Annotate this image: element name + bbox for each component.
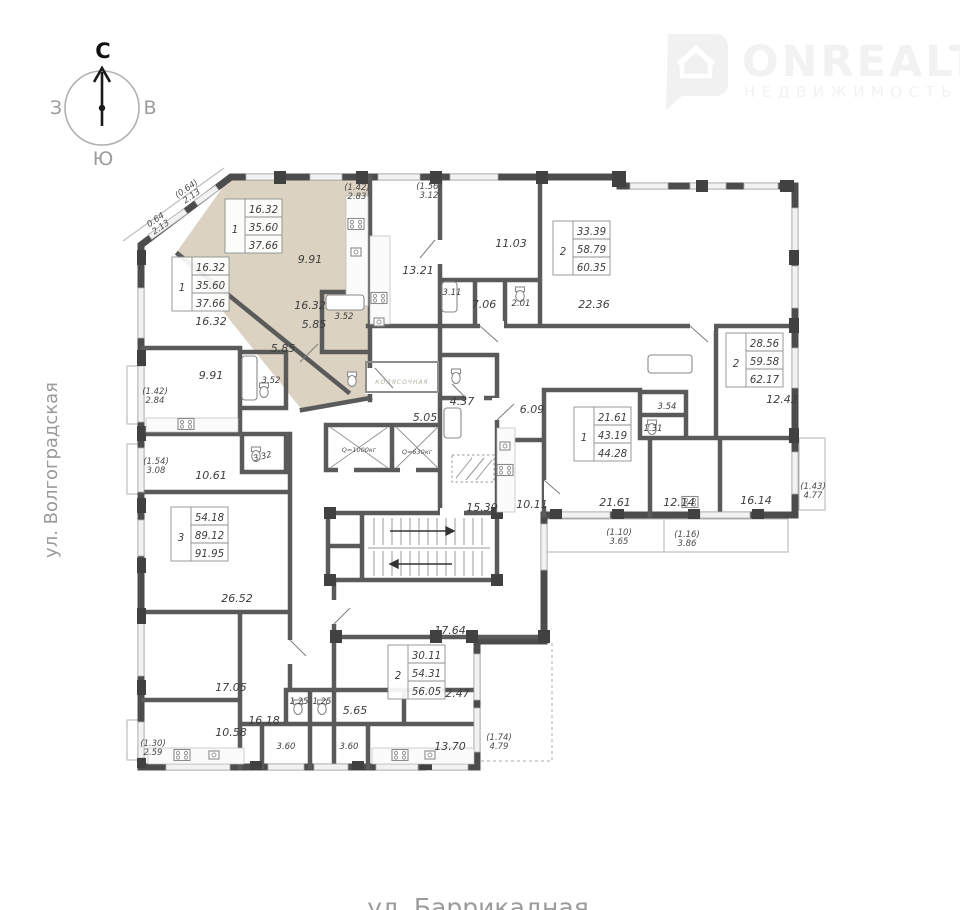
fire-cabinet-icon — [452, 455, 494, 482]
staircase — [368, 518, 490, 576]
room-label-core-corridor: 15.30 — [466, 501, 498, 514]
room-label-f-room1: 17.64 — [434, 624, 466, 637]
apartment-d-rooms: 2 — [733, 359, 739, 370]
room-label-core-hall: 5.05 — [413, 411, 438, 424]
apartment-a-total: 37.66 — [249, 241, 279, 252]
room-label-a-bath: 3.52 — [335, 312, 354, 322]
balcony-g-left2-l2: 2.59 — [144, 748, 163, 758]
apartment-e-info-table: 1 21.61 43.19 44.28 — [574, 407, 631, 461]
apartment-f-info-table: 2 30.11 54.31 56.05 — [388, 645, 445, 699]
room-label-b-bath: 3.52 — [262, 376, 281, 386]
compass-south-label: Ю — [93, 148, 114, 170]
elevator-1-capacity-label: Q=1000кг — [342, 446, 377, 454]
svg-text:(1.74)4.79: (1.74)4.79 — [486, 733, 512, 752]
apartment-g-total: 91.95 — [195, 549, 224, 560]
balcony-e-bottom2-l2: 3.86 — [678, 539, 698, 549]
room-label-c-kitchen: 13.21 — [402, 264, 434, 277]
balcony-g-left-l2: 3.08 — [147, 466, 167, 476]
svg-text:(1.43)4.77: (1.43)4.77 — [800, 482, 826, 501]
watermark-tagline-text: НЕДВИЖИМОСТЬ — [744, 83, 958, 101]
apartment-g-area: 89.12 — [195, 531, 224, 542]
stroller-room-label: КОЛЯСОЧНАЯ — [375, 379, 428, 386]
room-label-c-bedroom: 11.03 — [495, 237, 527, 250]
room-label-g-wc: 1.25 — [290, 697, 309, 707]
svg-text:(1.42)2.84: (1.42)2.84 — [142, 387, 168, 406]
apartment-e-total: 44.28 — [598, 449, 628, 460]
apartment-b-living: 16.32 — [196, 263, 225, 274]
apartment-b-area: 35.60 — [196, 281, 225, 292]
balcony-f-right-l2: 4.79 — [490, 742, 509, 752]
room-label-g-kitchen: 10.58 — [215, 726, 247, 739]
apartment-c-rooms: 2 — [560, 247, 566, 258]
apartment-b-total: 37.66 — [196, 299, 226, 310]
stroller-room: КОЛЯСОЧНАЯ — [366, 362, 438, 392]
apartment-g-living: 54.18 — [195, 513, 225, 524]
apartment-b-info-table: 1 16.32 35.60 37.66 — [172, 257, 229, 311]
apartment-b-rooms: 1 — [179, 283, 185, 294]
apartment-f-living: 30.11 — [412, 651, 441, 662]
room-label-e-wc: 1.31 — [644, 424, 663, 434]
apartment-a-rooms: 1 — [232, 225, 238, 236]
compass-north-label: С — [95, 39, 110, 63]
apartment-d-info-table: 2 28.56 59.58 62.17 — [726, 333, 783, 387]
compass-west-label: З — [50, 97, 62, 119]
apartment-d-total: 62.17 — [750, 375, 780, 386]
room-label-c-hall: 7.06 — [472, 298, 497, 311]
elevators: Q=1000кг Q=630кг — [330, 427, 438, 468]
room-label-b-room: 16.32 — [195, 315, 227, 328]
apartment-f-area: 54.31 — [412, 669, 441, 680]
balcony-b-left-l2: 2.84 — [146, 396, 165, 406]
svg-text:0.642.13: 0.642.13 — [145, 211, 171, 237]
room-label-b-hall: 5.85 — [271, 342, 296, 355]
room-label-f-bath: 3.60 — [340, 742, 359, 752]
svg-text:(1.16)3.86: (1.16)3.86 — [674, 530, 700, 549]
compass-north-arrow-icon — [94, 68, 110, 126]
svg-text:(1.30)2.59: (1.30)2.59 — [140, 739, 166, 758]
apartment-f-rooms: 2 — [395, 671, 401, 682]
onrealt-watermark: ONREALT НЕДВИЖИМОСТЬ — [666, 34, 960, 110]
room-label-c-wc: 2.01 — [512, 299, 531, 309]
room-label-g-room1: 26.52 — [221, 592, 253, 605]
onrealt-pin-icon — [666, 34, 728, 110]
apartment-c-living: 33.39 — [577, 227, 606, 238]
apartment-c-info-table: 2 33.39 58.79 60.35 — [553, 221, 610, 275]
room-label-d-room1: 12.42 — [766, 393, 798, 406]
room-label-b-kitchen: 9.91 — [199, 369, 224, 382]
apartment-g-rooms: 3 — [178, 533, 184, 544]
apartment-c-area: 58.79 — [577, 245, 606, 256]
room-label-g-room2: 17.05 — [215, 681, 247, 694]
apartment-g-info-table: 3 54.18 89.12 91.95 — [171, 507, 228, 561]
room-label-d-kitchen: 12.14 — [663, 496, 695, 509]
room-label-f-kitchen: 13.70 — [434, 740, 466, 753]
apartment-e-area: 43.19 — [598, 431, 627, 442]
balcony-e-bottom1-l2: 3.65 — [610, 537, 629, 547]
room-label-d-living: 16.14 — [740, 494, 772, 507]
room-label-f-hall: 5.65 — [343, 704, 368, 717]
apartment-e-rooms: 1 — [581, 433, 587, 444]
apartment-c-total: 60.35 — [577, 263, 606, 274]
apartment-d-living: 28.56 — [750, 339, 780, 350]
balcony-c-top-l2: 3.12 — [420, 191, 439, 201]
room-label-g-hall: 16.18 — [248, 714, 280, 727]
svg-text:(1.54)3.08: (1.54)3.08 — [143, 457, 169, 476]
room-label-f-wc: 1.25 — [313, 697, 332, 707]
room-label-e-bath: 3.54 — [658, 402, 677, 412]
apartment-d-area: 59.58 — [750, 357, 780, 368]
room-label-a-hall: 5.85 — [302, 318, 327, 331]
room-label-core-bath: 4.37 — [450, 395, 475, 408]
street-bottom-label: ул. Баррикадная — [367, 893, 589, 910]
apartment-a-area: 35.60 — [249, 223, 278, 234]
elevator-2-capacity-label: Q=630кг — [402, 448, 433, 456]
room-label-e-kitchen: 10.11 — [516, 498, 548, 511]
balcony-a-top-l2: 2.83 — [348, 192, 367, 202]
compass: С З В Ю — [50, 39, 157, 170]
room-label-c-living: 22.36 — [578, 298, 610, 311]
room-label-c-bath: 3.11 — [443, 288, 462, 298]
room-label-a-living: 16.32 — [294, 299, 326, 312]
watermark-brand-text: ONREALT — [742, 37, 960, 87]
floor-plan-canvas: ONREALT НЕДВИЖИМОСТЬ С З В Ю ул. Волгогр… — [0, 0, 960, 910]
compass-east-label: В — [143, 97, 156, 119]
apartment-e-living: 21.61 — [598, 413, 627, 424]
room-label-e-living: 21.61 — [599, 496, 631, 509]
room-label-a-kitchen: 9.91 — [298, 253, 323, 266]
room-label-e-hall: 6.09 — [520, 403, 545, 416]
svg-text:(1.56)3.12: (1.56)3.12 — [416, 182, 442, 201]
svg-text:(1.42)2.83: (1.42)2.83 — [344, 183, 370, 202]
room-label-g-kitchen-top: 10.61 — [195, 469, 227, 482]
apartment-f-total: 56.05 — [412, 687, 441, 698]
apartment-a-living: 16.32 — [249, 205, 278, 216]
svg-text:(1.10)3.65: (1.10)3.65 — [606, 528, 632, 547]
apartment-a-info-table: 1 16.32 35.60 37.66 — [225, 199, 282, 253]
balcony-d-right-l2: 4.77 — [804, 491, 824, 501]
street-left-label: ул. Волгоградская — [41, 382, 62, 558]
room-label-g-bath: 3.60 — [277, 742, 296, 752]
